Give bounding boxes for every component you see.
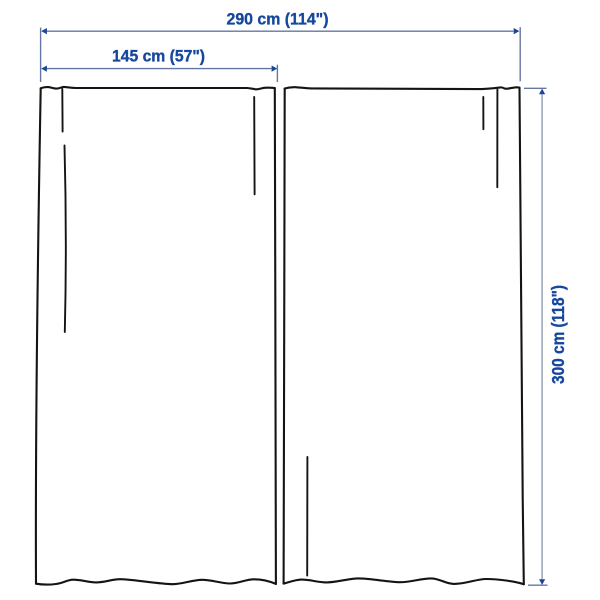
svg-text:290 cm (114"): 290 cm (114") <box>227 10 329 29</box>
svg-text:145 cm (57"): 145 cm (57") <box>112 46 205 65</box>
svg-text:300 cm (118"): 300 cm (118") <box>548 285 568 384</box>
